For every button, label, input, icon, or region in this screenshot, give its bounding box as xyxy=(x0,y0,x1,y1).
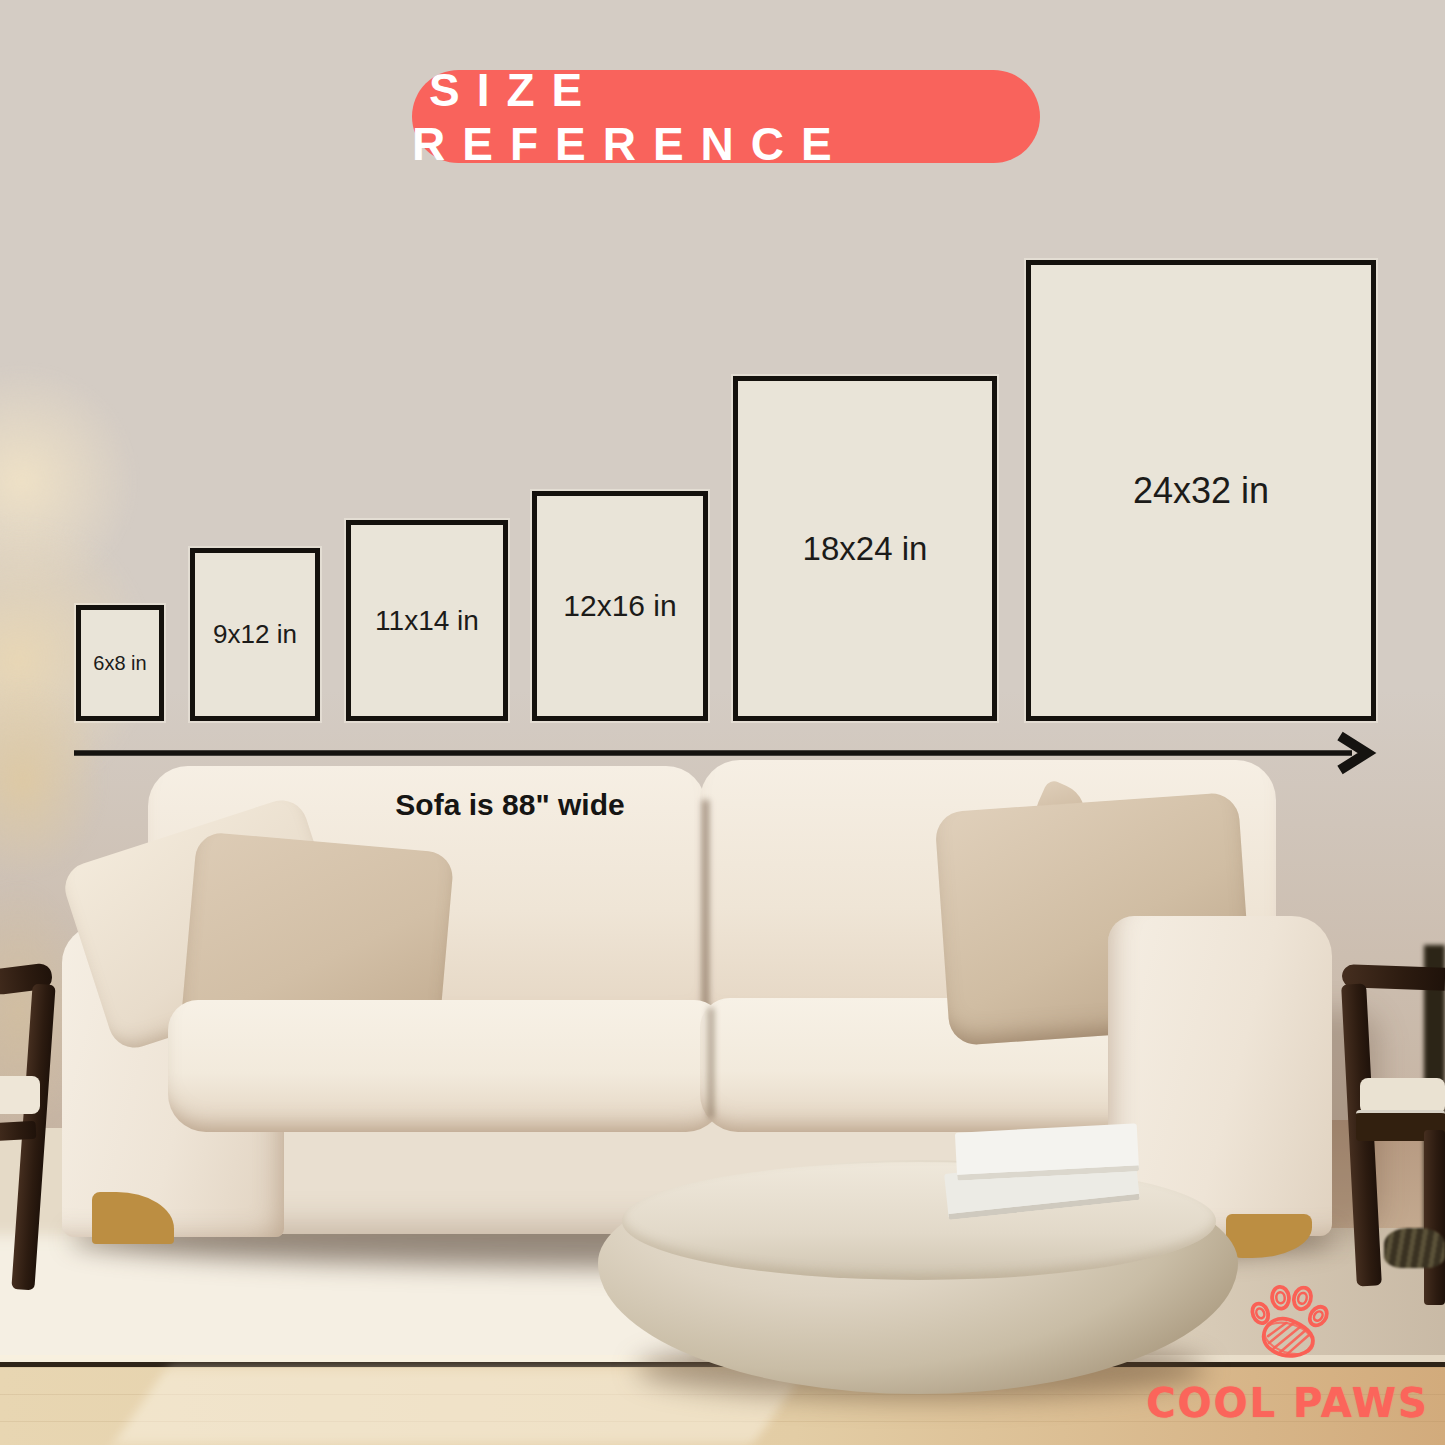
size-box-label: 18x24 in xyxy=(803,530,928,568)
size-reference-badge-label: SIZE REFERENCE xyxy=(412,63,1040,171)
size-box-label: 24x32 in xyxy=(1133,470,1269,512)
accent-chair-left-rail xyxy=(0,1121,36,1141)
accent-chair-left-cushion xyxy=(0,1076,40,1114)
size-box-label: 9x12 in xyxy=(213,619,297,650)
size-box-18x24: 18x24 in xyxy=(733,376,997,721)
size-box-12x16: 12x16 in xyxy=(532,491,708,721)
size-box-6x8: 6x8 in xyxy=(76,605,164,721)
brand-logo xyxy=(1242,1280,1334,1366)
sofa-width-label: Sofa is 88" wide xyxy=(330,788,690,822)
accent-chair-right-cushion xyxy=(1360,1078,1445,1114)
paw-print-icon xyxy=(1242,1280,1334,1366)
accent-chair-right-leg xyxy=(1424,1130,1445,1305)
cat-paws xyxy=(1384,1228,1445,1268)
size-box-11x14: 11x14 in xyxy=(346,520,508,721)
sofa-cushion-seam xyxy=(702,800,709,1015)
arrow-right-icon xyxy=(56,731,1386,775)
size-box-label: 12x16 in xyxy=(563,589,676,623)
sofa-cushion-seam xyxy=(708,1008,714,1118)
size-reference-graphic: SIZE REFERENCE 6x8 in 9x12 in 11x14 in 1… xyxy=(0,0,1445,1445)
size-reference-badge: SIZE REFERENCE xyxy=(412,70,1040,163)
sofa-width-arrow xyxy=(56,731,1386,775)
stacked-books xyxy=(955,1123,1139,1180)
size-box-label: 6x8 in xyxy=(93,652,146,675)
sofa-seat-cushion xyxy=(168,1000,724,1132)
size-box-24x32: 24x32 in xyxy=(1026,260,1376,721)
size-box-label: 11x14 in xyxy=(375,605,479,637)
brand-name: COOL PAWS xyxy=(1140,1380,1435,1426)
size-box-9x12: 9x12 in xyxy=(190,548,320,721)
